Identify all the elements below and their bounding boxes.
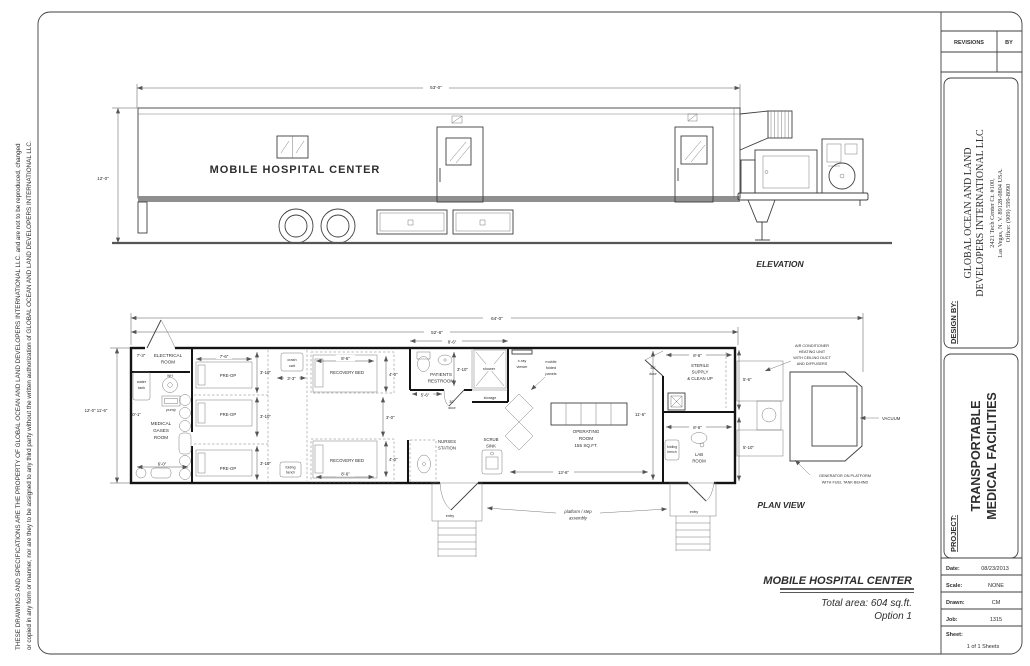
or-width-dim: 13'-6" bbox=[558, 470, 569, 475]
preop-label-3: PRE-OP bbox=[220, 466, 237, 471]
blueprint-canvas: THESE DRAWINGS AND SPECIFICATIONS ARE TH… bbox=[0, 0, 1030, 666]
sheet-info-table: Date: 08/23/2013 Scale: NONE Drawn: CM J… bbox=[941, 558, 1022, 650]
platform-label-2: assembly bbox=[569, 516, 588, 521]
job-label: Job: bbox=[946, 617, 958, 623]
folding-panel bbox=[505, 422, 533, 450]
operating-table bbox=[551, 403, 627, 425]
pump-label: pump bbox=[166, 408, 176, 412]
gas-tank bbox=[151, 468, 171, 478]
option-text: Option 1 bbox=[874, 611, 912, 622]
preop-label-1: PRE-OP bbox=[220, 373, 237, 378]
lab-bench-label-1: folding bbox=[667, 445, 677, 449]
scale-label: Scale: bbox=[946, 583, 962, 589]
operating-room: OPERATING ROOM 155 SQ.FT. 11'-6" 13'-6" … bbox=[510, 351, 663, 480]
preop-bed-dim-2: 3'-10" bbox=[260, 414, 271, 419]
gas-cylinder bbox=[180, 421, 191, 432]
preop-bed bbox=[196, 450, 252, 476]
corridor-width-dim: 3'-3" bbox=[287, 376, 296, 381]
by-header: BY bbox=[1005, 40, 1013, 46]
scale-value: NONE bbox=[988, 583, 1004, 589]
restroom-label-1: PATIENTS bbox=[430, 372, 452, 377]
or-label-1: OPERATING bbox=[573, 429, 600, 434]
elevation-height-dim: 12'-0" bbox=[97, 176, 109, 181]
plan-interior-dim: 52'-6" bbox=[431, 330, 443, 335]
sheet-label: Sheet: bbox=[946, 632, 963, 638]
elevation-window bbox=[277, 136, 308, 158]
generator-label-1: GENERATOR ON PLATFORM bbox=[819, 474, 871, 478]
recovery-label-2: RECOVERY BED bbox=[330, 458, 364, 463]
crash-cart-label-1: crash bbox=[287, 358, 296, 362]
sterile-label-1: STERILE bbox=[691, 363, 709, 368]
water-tank-label-2: tank bbox=[138, 386, 145, 390]
generator-platform bbox=[790, 372, 862, 461]
plan-left-height-dim: 12'-0" 11'-6" bbox=[85, 408, 108, 413]
ac-label-1: AIR CONDITIONER bbox=[795, 344, 829, 348]
platform-label-1: platform / step bbox=[563, 509, 592, 514]
electrical-width-dim: 7'-3" bbox=[137, 353, 146, 358]
folding-bench bbox=[280, 462, 301, 477]
plan-overall-dim: 64'-0" bbox=[491, 316, 503, 321]
sterile-depth-dim: 5'-6" bbox=[743, 377, 752, 382]
preop-bays: 7'-6" PRE-OP 3'-10" PRE-OP 3'-10" PRE-OP… bbox=[194, 350, 271, 481]
station-sink bbox=[418, 455, 431, 473]
sterile-label-2: SUPPLY bbox=[692, 370, 709, 375]
panels-label-2: folded bbox=[546, 366, 556, 370]
recovery-bays: 8'-6" RECOVERY BED 4'-0" 3'-0" RECOVERY … bbox=[311, 352, 398, 482]
utility-fixtures: water tank WH pump bbox=[133, 372, 180, 412]
folding-panel bbox=[505, 394, 533, 422]
date-label: Date: bbox=[946, 566, 960, 572]
recovery1-depth-dim: 4'-0" bbox=[389, 372, 398, 377]
water-heater bbox=[163, 378, 178, 393]
disclaimer-line-1: THESE DRAWINGS AND SPECIFICATIONS ARE TH… bbox=[15, 143, 22, 650]
xray-label-1: x-ray bbox=[518, 359, 527, 363]
storage-label: storage bbox=[484, 396, 497, 400]
elevation-door-right bbox=[675, 114, 713, 202]
or-accessories: x-ray viewer mobile folded panels bbox=[505, 350, 557, 450]
date-value: 08/23/2013 bbox=[981, 566, 1009, 572]
landing-gear bbox=[748, 200, 775, 222]
nurses-label-1: NURSES bbox=[438, 439, 456, 444]
elevation-view: 53'-0" 12'-0" MOBILE HOSPITAL CENTER bbox=[90, 83, 892, 270]
medgas-label-3: ROOM bbox=[154, 435, 168, 440]
drawing-title: MOBILE HOSPITAL CENTER bbox=[763, 575, 912, 587]
toilet bbox=[417, 352, 430, 359]
revisions-header: REVISIONS bbox=[954, 40, 984, 46]
rear-equipment-plan: AIR CONDITIONER HEATING UNIT WITH CEILIN… bbox=[737, 344, 901, 485]
medgas-label-1: MEDICAL bbox=[151, 421, 172, 426]
generator-cabinet bbox=[755, 150, 817, 193]
trailer-wheels bbox=[279, 209, 355, 243]
crash-cart bbox=[281, 353, 303, 371]
title-block: REVISIONS BY DESIGN BY: GLOBAL OCEAN AND… bbox=[941, 31, 1022, 650]
entry-platform bbox=[432, 483, 482, 521]
preop-width-dim: 7'-6" bbox=[220, 354, 229, 359]
disclaimer-line-2: or copied in any form or manner, nor are… bbox=[26, 140, 33, 650]
restroom-width-dim: 5'-6" bbox=[421, 392, 430, 397]
electrical-room-label-2: ROOM bbox=[161, 360, 175, 365]
drawn-value: CM bbox=[992, 600, 1001, 606]
gas-cylinder bbox=[180, 469, 191, 480]
lab-width-dim: 8'-6" bbox=[693, 425, 702, 430]
company-name-2: DEVELOPERS INTERNATIONAL LLC bbox=[975, 129, 986, 297]
restroom-door-label-2: door bbox=[448, 406, 456, 410]
design-by-label: DESIGN BY: bbox=[949, 301, 958, 344]
underbody-storage bbox=[377, 210, 513, 234]
or-door-label-1: 30" bbox=[650, 366, 656, 370]
restroom-door-label-1: 30" bbox=[449, 400, 455, 404]
elevation-length-dim: 53'-0" bbox=[430, 85, 442, 90]
drawing-sheet: THESE DRAWINGS AND SPECIFICATIONS ARE TH… bbox=[0, 0, 1030, 666]
preop-bed-dim-3: 3'-10" bbox=[260, 461, 271, 466]
entry-label-left: entry bbox=[446, 514, 455, 518]
recovery2-width-dim: 8'-6" bbox=[341, 472, 350, 477]
panels-label-3: panels bbox=[545, 372, 556, 376]
preop-bed-dim-1: 3'-10" bbox=[260, 370, 271, 375]
sink bbox=[438, 355, 452, 365]
gas-cylinder bbox=[180, 395, 191, 406]
job-value: 1315 bbox=[990, 617, 1002, 623]
medgas-width-dim: 6'-0" bbox=[158, 462, 167, 467]
medgas-label-2: GASES bbox=[153, 428, 169, 433]
lab-room: 8'-6" LAB ROOM folding bench 5'-10" bbox=[665, 417, 760, 481]
project-label: PROJECT: bbox=[949, 515, 958, 552]
gas-cylinder bbox=[136, 468, 146, 478]
medgas-height-dim: 10'-1" bbox=[130, 412, 141, 417]
sterile-width-dim: 8'-6" bbox=[693, 353, 702, 358]
preop-label-2: PRE-OP bbox=[220, 412, 237, 417]
footer-title-block: MOBILE HOSPITAL CENTER Total area: 604 s… bbox=[763, 575, 914, 622]
toilet bbox=[418, 357, 430, 372]
microscope bbox=[691, 433, 707, 444]
rear-equipment bbox=[738, 111, 868, 240]
restroom-top-dim: 8'-6" bbox=[448, 340, 457, 345]
gas-tank bbox=[179, 433, 191, 454]
total-area-text: Total area: 604 sq.ft. bbox=[821, 598, 912, 609]
entry-platforms: entry entry platform / step assembly bbox=[432, 483, 716, 557]
elevation-view-label: ELEVATION bbox=[756, 259, 804, 269]
lab-depth-dim: 5'-10" bbox=[743, 445, 754, 450]
folding-bench-label-2: bench bbox=[286, 471, 295, 475]
xray-label-2: viewer bbox=[517, 365, 529, 369]
corridor-items: crash cart 3'-3" folding bench bbox=[277, 350, 307, 481]
vacuum-label: VACUUM bbox=[882, 416, 901, 421]
project-name-2: MEDICAL FACILITIES bbox=[985, 392, 999, 520]
scrub-label-2: SINK bbox=[486, 444, 496, 449]
entry-label-right: entry bbox=[690, 510, 699, 514]
ac-label-3: WITH CEILING DUCT bbox=[793, 356, 831, 360]
company-phone: Office: (909) 599-8090 bbox=[1005, 184, 1012, 243]
xray-viewer bbox=[512, 350, 532, 354]
vacuum-unit bbox=[812, 386, 857, 446]
disclaimer: THESE DRAWINGS AND SPECIFICATIONS ARE TH… bbox=[15, 140, 33, 650]
panels-label-1: mobile bbox=[545, 360, 556, 364]
or-label-2: ROOM bbox=[579, 436, 593, 441]
recovery2-depth-dim: 4'-0" bbox=[389, 457, 398, 462]
water-tank-label-1: water bbox=[137, 380, 147, 384]
gas-cylinder bbox=[180, 408, 191, 419]
lab-label-2: ROOM bbox=[692, 459, 706, 464]
company-address-1: 2421 Tech Center Ct. #100, bbox=[989, 178, 996, 248]
rear-platform bbox=[738, 193, 868, 200]
crash-cart-label-2: cart bbox=[289, 364, 296, 368]
scrub-label-1: SCRUB bbox=[483, 437, 498, 442]
recovery1-width-dim: 8'-6" bbox=[341, 356, 350, 361]
restroom-depth-dim: 3'-10" bbox=[457, 367, 468, 372]
ac-label-2: HEATING UNIT bbox=[799, 350, 826, 354]
recovery-gap-dim: 3'-0" bbox=[386, 415, 395, 420]
project-name-1: TRANSPORTABLE bbox=[969, 401, 983, 512]
entry-door-leaf bbox=[147, 320, 161, 348]
elevation-door-middle bbox=[437, 116, 483, 202]
recovery-label-1: RECOVERY BED bbox=[330, 370, 364, 375]
electrical-room: 7'-3" ELECTRICAL ROOM bbox=[137, 353, 183, 365]
lab-label-1: LAB bbox=[695, 452, 703, 457]
scrub-sink: SCRUB SINK bbox=[482, 437, 502, 474]
gas-cylinder bbox=[180, 456, 191, 467]
or-depth-dim: 11'-6" bbox=[635, 412, 646, 417]
ac-label-4: AND DIFFUSERS bbox=[797, 362, 828, 366]
restroom-label-2: RESTROOM bbox=[428, 379, 455, 384]
medical-gases-room: 10'-1" MEDICAL GASES ROOM 6'-0" bbox=[130, 395, 191, 480]
trailer-side-text: MOBILE HOSPITAL CENTER bbox=[210, 164, 381, 176]
generator-label-2: WITH FUEL TANK BEHIND bbox=[822, 481, 869, 485]
plan-view: 64'-0" 52'-6" 8'-6" 12'-0" 11'-6" bbox=[76, 313, 901, 558]
or-label-3: 155 SQ.FT. bbox=[574, 443, 597, 448]
or-door-label-2: door bbox=[649, 372, 657, 376]
sterile-label-3: & CLEAN UP bbox=[687, 376, 713, 381]
sheet-value: 1 of 1 Sheets bbox=[967, 644, 1000, 650]
company-name-1: GLOBAL OCEAN AND LAND bbox=[963, 147, 974, 278]
lab-bench-label-2: bench bbox=[667, 450, 676, 454]
drawn-label: Drawn: bbox=[946, 600, 965, 606]
company-address-2: Las Vegas, N. V. 89128-0804 USA. bbox=[997, 168, 1004, 258]
electrical-room-label-1: ELECTRICAL bbox=[154, 353, 183, 358]
plan-view-label: PLAN VIEW bbox=[757, 500, 805, 510]
folding-bench-label-1: folding bbox=[286, 466, 296, 470]
nurses-label-2: STATION bbox=[438, 446, 456, 451]
shower-label: shower bbox=[483, 367, 496, 371]
nurses-station: NURSES STATION bbox=[410, 439, 456, 482]
